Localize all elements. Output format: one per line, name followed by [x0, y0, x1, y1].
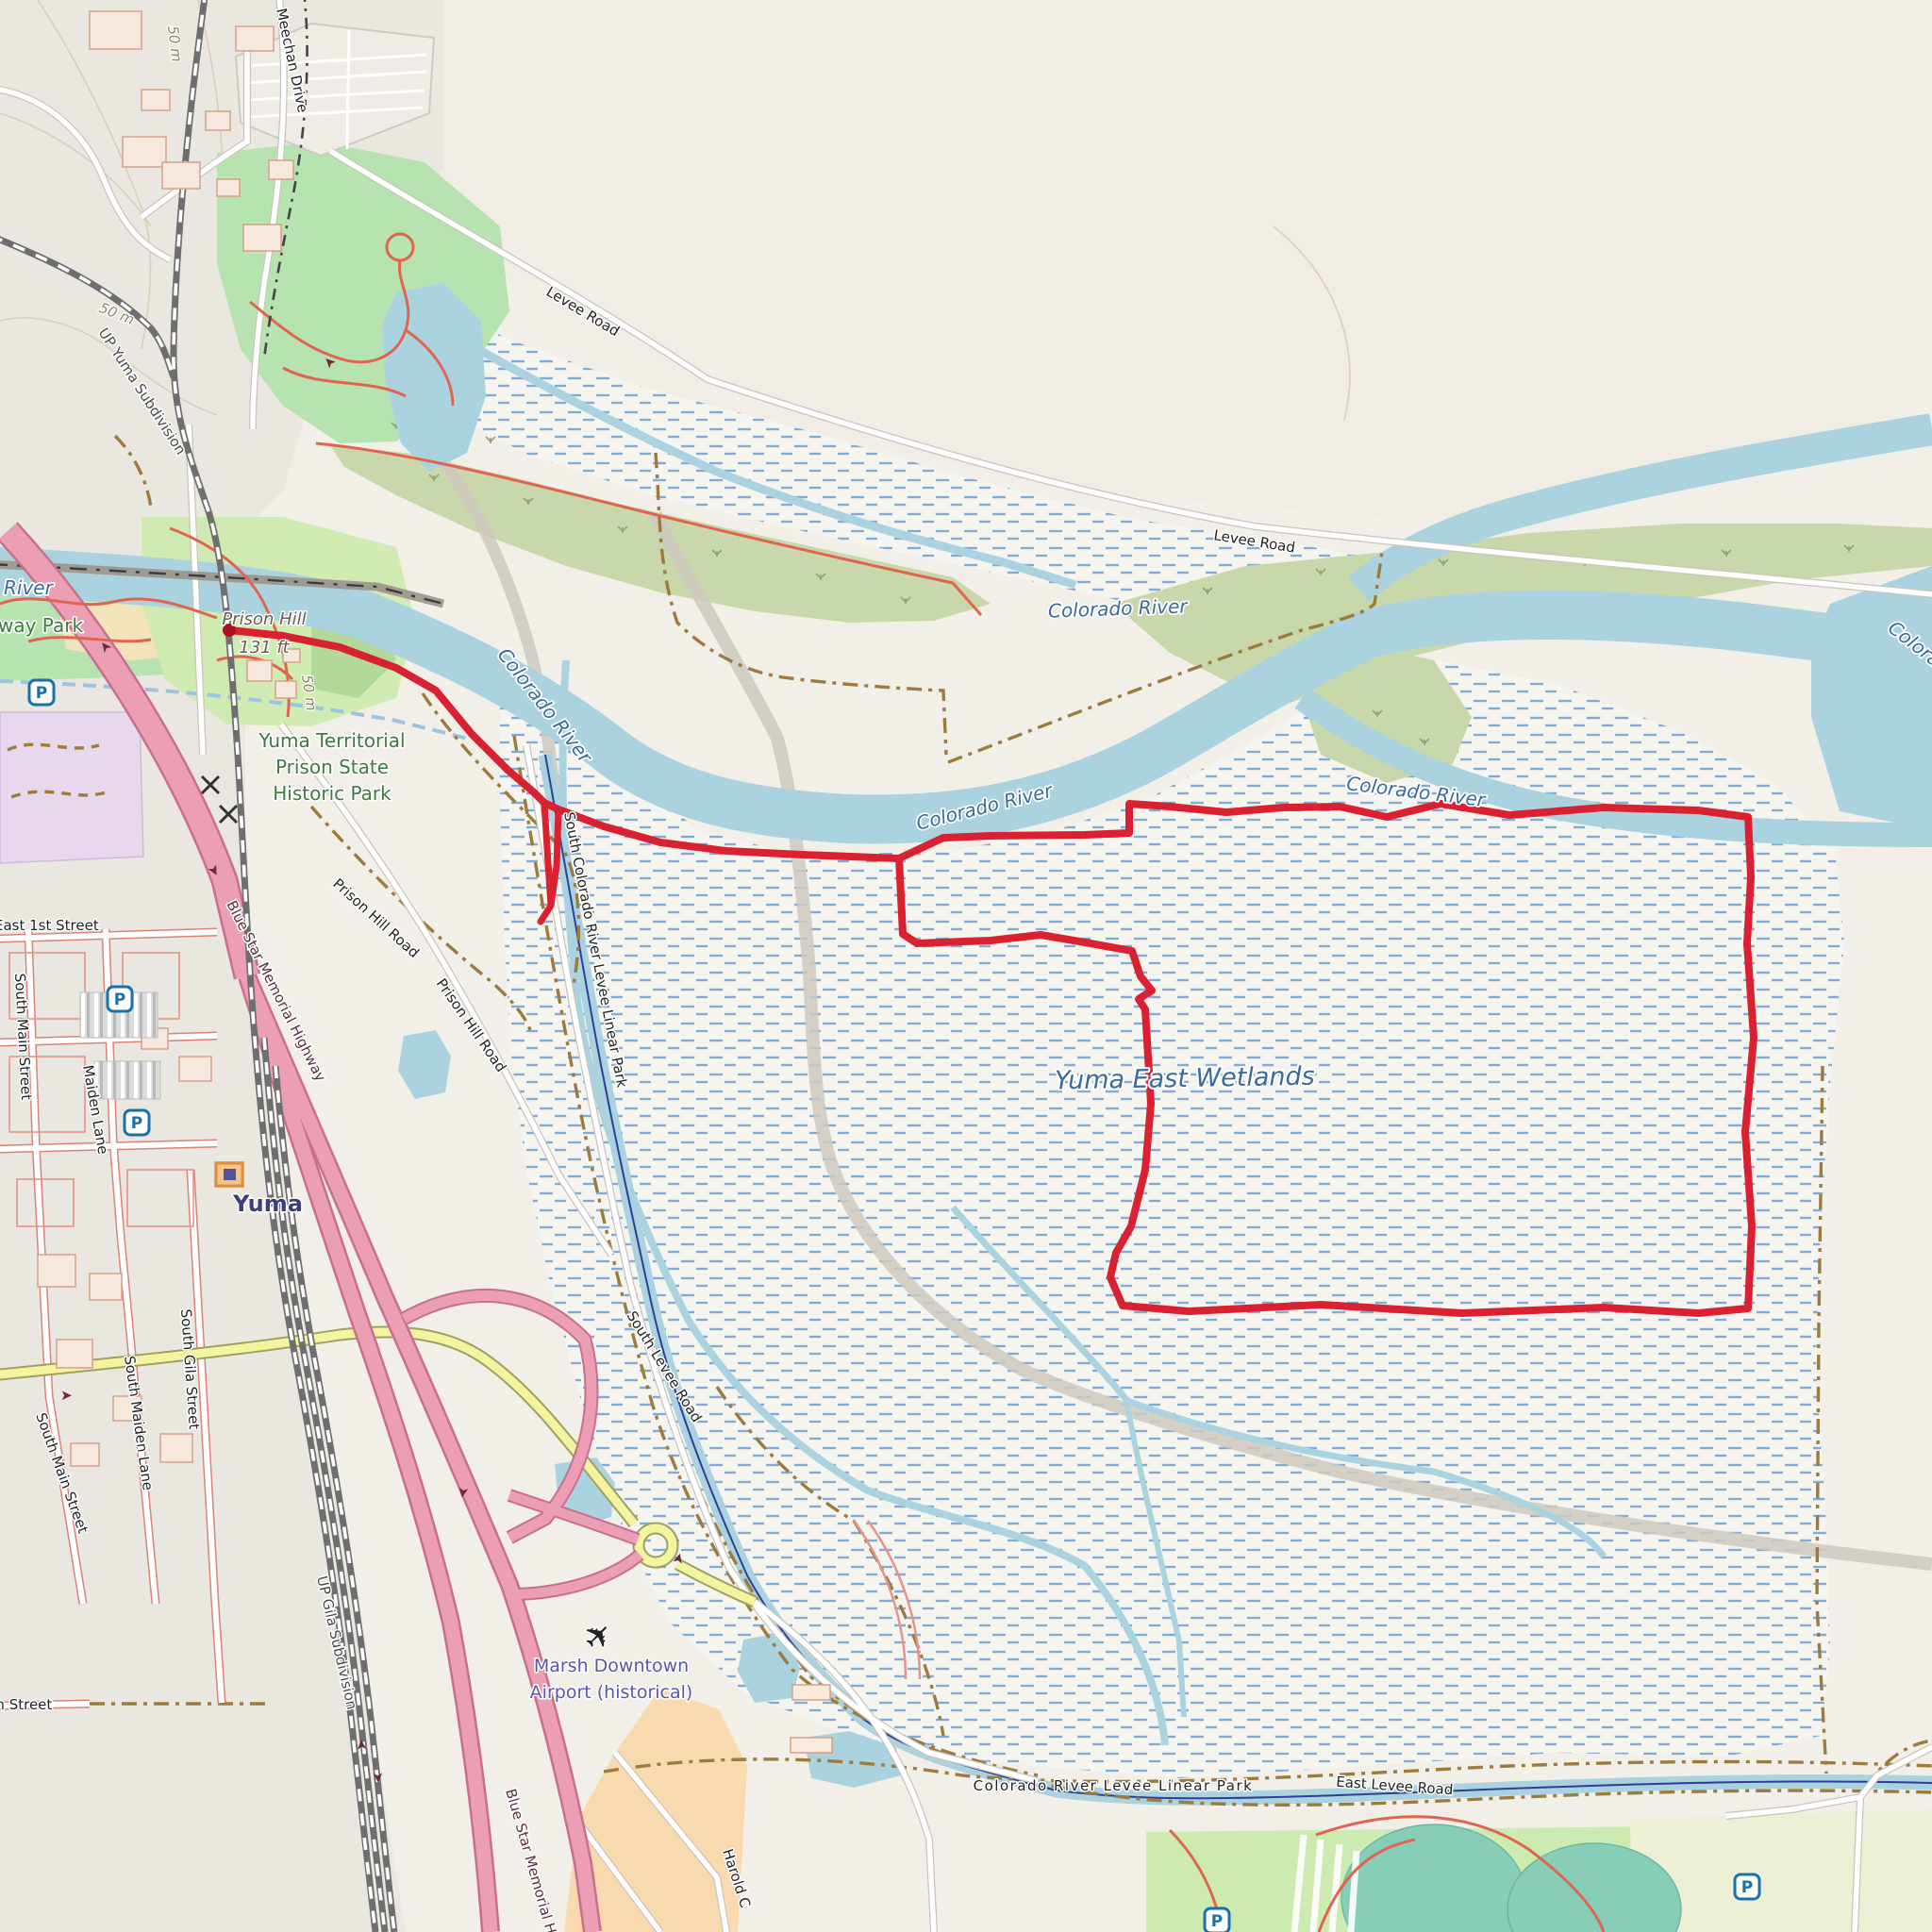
- svg-text:P: P: [114, 991, 125, 1009]
- retail-block: [0, 712, 143, 863]
- parking-icon: P: [1205, 1908, 1229, 1932]
- map-canvas[interactable]: P P P P P ✈ ➤ ➤ ➤ ➤ ➤ ➤ ➤ ➤ Meechan Driv…: [0, 0, 1932, 1932]
- label-airport-1: Marsh Downtown: [534, 1656, 689, 1676]
- label-prison-park-3: Historic Park: [273, 782, 391, 805]
- svg-text:P: P: [36, 684, 47, 703]
- label-yuma-east-wetlands: Yuma East Wetlands: [1055, 1062, 1315, 1096]
- label-5th-street: 5th Street: [0, 1696, 52, 1713]
- svg-text:➤: ➤: [370, 1771, 388, 1784]
- parking-icon: P: [108, 987, 132, 1011]
- parking-icon: P: [29, 680, 54, 705]
- svg-text:➤: ➤: [352, 1739, 370, 1752]
- label-prison-hill-elevation: 131 ft: [239, 638, 290, 658]
- parking-icon: P: [125, 1110, 149, 1135]
- svg-text:P: P: [1211, 1912, 1223, 1931]
- label-airport-2: Airport (historical): [530, 1682, 693, 1703]
- svg-text:P: P: [1741, 1878, 1753, 1897]
- rail-station-icon: [216, 1163, 242, 1186]
- label-prison-park-2: Prison State: [275, 756, 389, 778]
- svg-text:P: P: [131, 1114, 142, 1133]
- label-prison-hill: Prison Hill: [222, 609, 306, 629]
- label-way-park: way Park: [0, 614, 83, 637]
- label-prison-park-1: Yuma Territorial: [258, 729, 405, 752]
- label-crllp: Colorado River Levee Linear Park: [974, 1777, 1254, 1794]
- parking-icon: P: [1735, 1874, 1759, 1899]
- svg-text:➤: ➤: [60, 1387, 73, 1404]
- label-east-1st-street: East 1st Street: [0, 917, 99, 934]
- label-river-partial: River: [4, 576, 55, 599]
- label-yuma-city: Yuma: [232, 1191, 303, 1217]
